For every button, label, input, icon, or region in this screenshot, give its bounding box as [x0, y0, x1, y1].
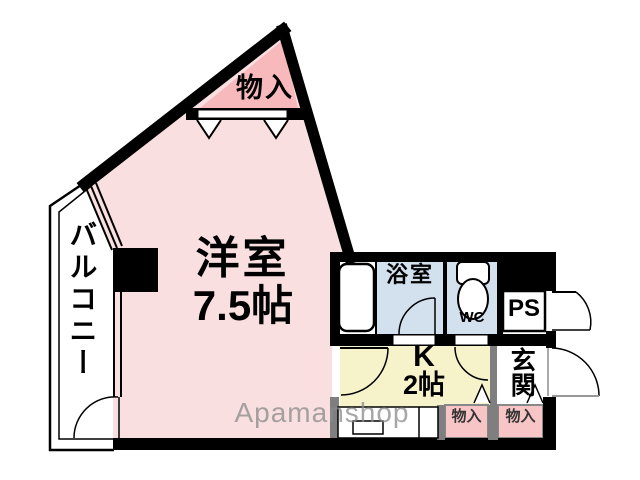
entrance-door: [548, 348, 599, 396]
floorplan-canvas: 洋室 7.5帖 物入 バルコニー 浴室 WC PS K 2帖 玄関 物入 物入 …: [0, 0, 640, 480]
storage-bottom-1-label: 物入: [445, 409, 488, 425]
main-room-label: 洋室: [150, 236, 335, 282]
bathroom-label: 浴室: [377, 263, 443, 286]
closet-opening: [198, 110, 287, 118]
separator-storage-storage-gray: [488, 405, 498, 440]
pipe-space-label: PS: [503, 296, 545, 321]
entrance-label: 玄関: [508, 341, 534, 403]
main-room-size-label: 7.5帖: [148, 284, 338, 328]
storage-top-label: 物入: [228, 74, 302, 102]
wall-right-between-doors: [546, 331, 556, 348]
shaft-black-box: [497, 252, 556, 291]
kitchen-label: K: [349, 341, 499, 373]
bathtub: [339, 264, 374, 331]
wall-bottom-right-corner: [543, 397, 556, 442]
toilet-label: WC: [447, 310, 497, 326]
meter-box-door: [552, 292, 591, 330]
balcony-label: バルコニー: [67, 191, 96, 409]
apamanshop-watermark: Apamanshop: [222, 398, 422, 427]
kitchen-size-label: 2帖: [349, 371, 499, 399]
storage-bottom-2-label: 物入: [498, 409, 543, 425]
